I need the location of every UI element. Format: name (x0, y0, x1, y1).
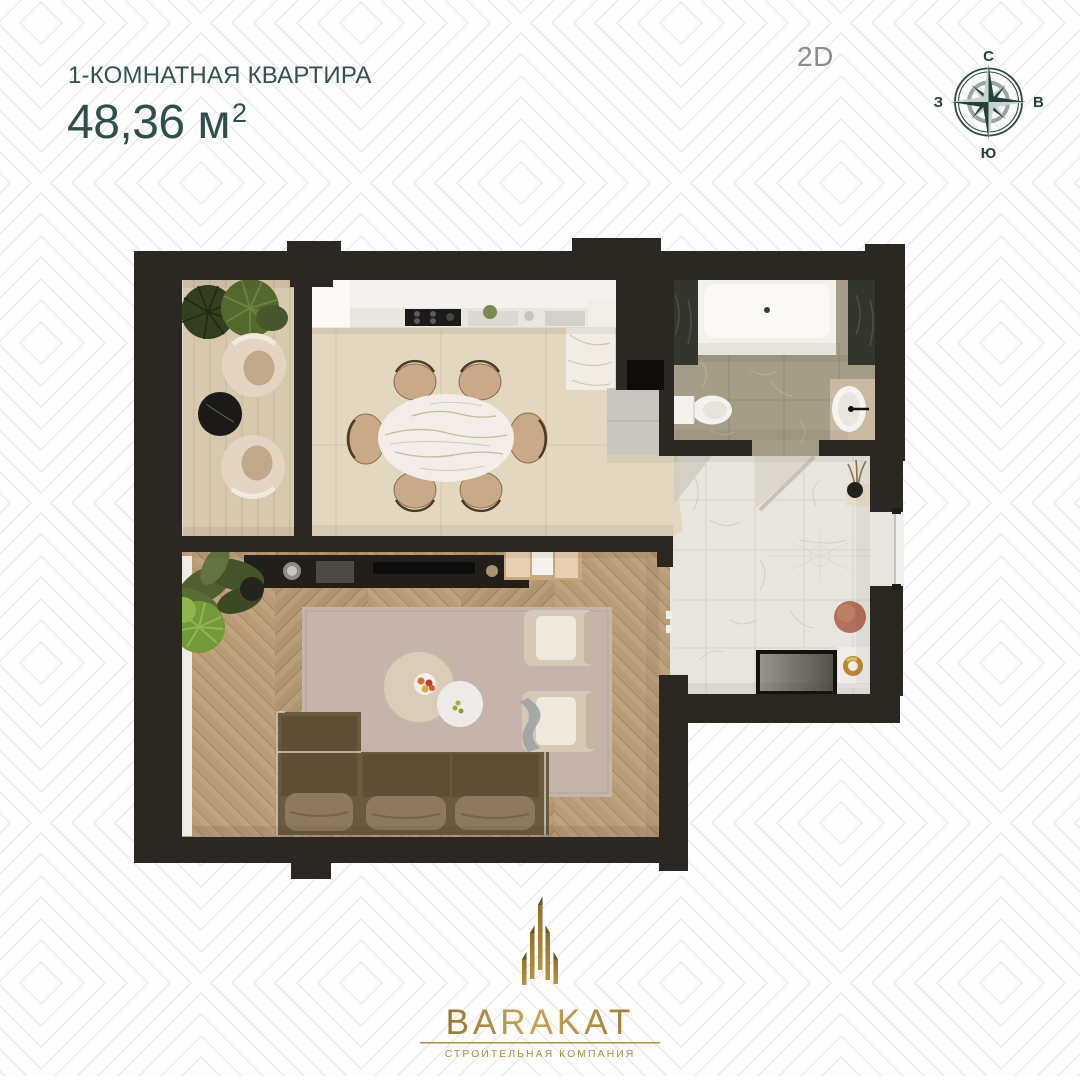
svg-text:З: З (934, 94, 943, 111)
svg-text:48,36 м: 48,36 м (67, 96, 230, 149)
svg-text:СТРОИТЕЛЬНАЯ КОМПАНИЯ: СТРОИТЕЛЬНАЯ КОМПАНИЯ (445, 1048, 636, 1060)
svg-text:В: В (1033, 94, 1044, 111)
svg-text:С: С (983, 48, 994, 65)
svg-text:2D: 2D (797, 41, 834, 72)
svg-text:BARAKAT: BARAKAT (446, 1003, 635, 1042)
svg-text:Ю: Ю (981, 145, 996, 162)
svg-text:1-КОМНАТНАЯ КВАРТИРА: 1-КОМНАТНАЯ КВАРТИРА (68, 62, 372, 89)
svg-text:2: 2 (232, 98, 247, 128)
